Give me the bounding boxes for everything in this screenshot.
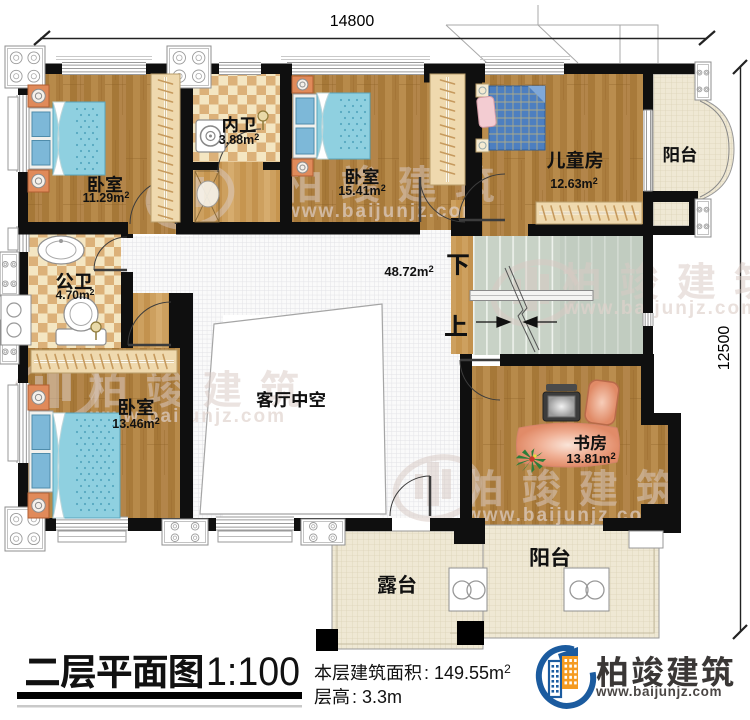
svg-text:14800: 14800 xyxy=(330,13,375,30)
svg-text:12.63m2: 12.63m2 xyxy=(550,176,597,191)
svg-text:13.81m2: 13.81m2 xyxy=(566,450,615,466)
svg-text:: 149.55m2: : 149.55m2 xyxy=(424,662,511,683)
svg-text:3.88m2: 3.88m2 xyxy=(219,132,259,147)
svg-text:: 3.3m: : 3.3m xyxy=(352,687,402,707)
svg-text:48.72m2: 48.72m2 xyxy=(384,263,433,279)
svg-text:www.baijunjz.com: www.baijunjz.com xyxy=(563,298,750,319)
svg-text:11.29m2: 11.29m2 xyxy=(83,190,130,205)
svg-text:1:100: 1:100 xyxy=(206,650,300,694)
svg-text:4.70m2: 4.70m2 xyxy=(56,287,95,302)
svg-text:13.46m2: 13.46m2 xyxy=(112,416,159,431)
svg-text:12500: 12500 xyxy=(716,326,733,371)
svg-text:www.baijunjz.com: www.baijunjz.com xyxy=(595,684,722,699)
svg-text:15.41m2: 15.41m2 xyxy=(338,183,385,198)
